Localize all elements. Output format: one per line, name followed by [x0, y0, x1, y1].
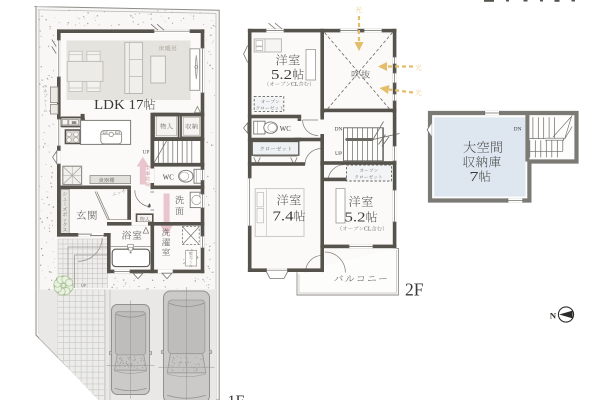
svg-text:WC: WC — [280, 126, 291, 133]
svg-text:5.2: 5.2 — [345, 210, 366, 225]
svg-text:2F: 2F — [405, 280, 424, 300]
svg-text:CL: CL — [364, 226, 372, 232]
svg-text:7.4: 7.4 — [273, 209, 294, 224]
svg-text:CL: CL — [291, 82, 299, 88]
svg-text:1F: 1F — [228, 393, 245, 400]
svg-text:LDK 17: LDK 17 — [94, 98, 144, 113]
svg-text:DN: DN — [335, 127, 343, 133]
svg-text:UP: UP — [143, 150, 150, 156]
svg-text:DN: DN — [514, 126, 522, 132]
svg-text:7: 7 — [470, 169, 479, 184]
svg-text:UP: UP — [335, 151, 342, 157]
svg-text:UP: UP — [81, 283, 87, 288]
svg-text:WC: WC — [163, 174, 174, 181]
svg-text:5.2: 5.2 — [271, 67, 292, 82]
svg-text:N: N — [550, 311, 557, 321]
